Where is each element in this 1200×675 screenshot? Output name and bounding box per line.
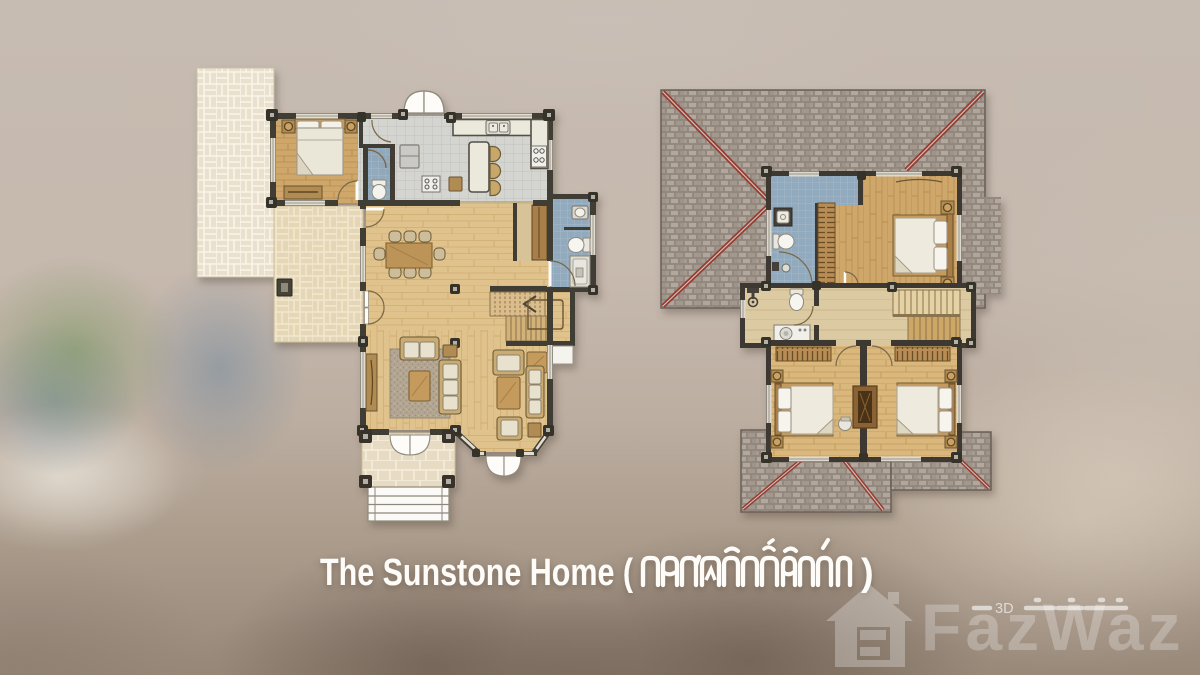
svg-text:3D: 3D <box>995 601 1014 617</box>
svg-text:FazWaz: FazWaz <box>921 590 1185 664</box>
svg-text:The Sunstone Home (: The Sunstone Home ( <box>320 552 633 594</box>
